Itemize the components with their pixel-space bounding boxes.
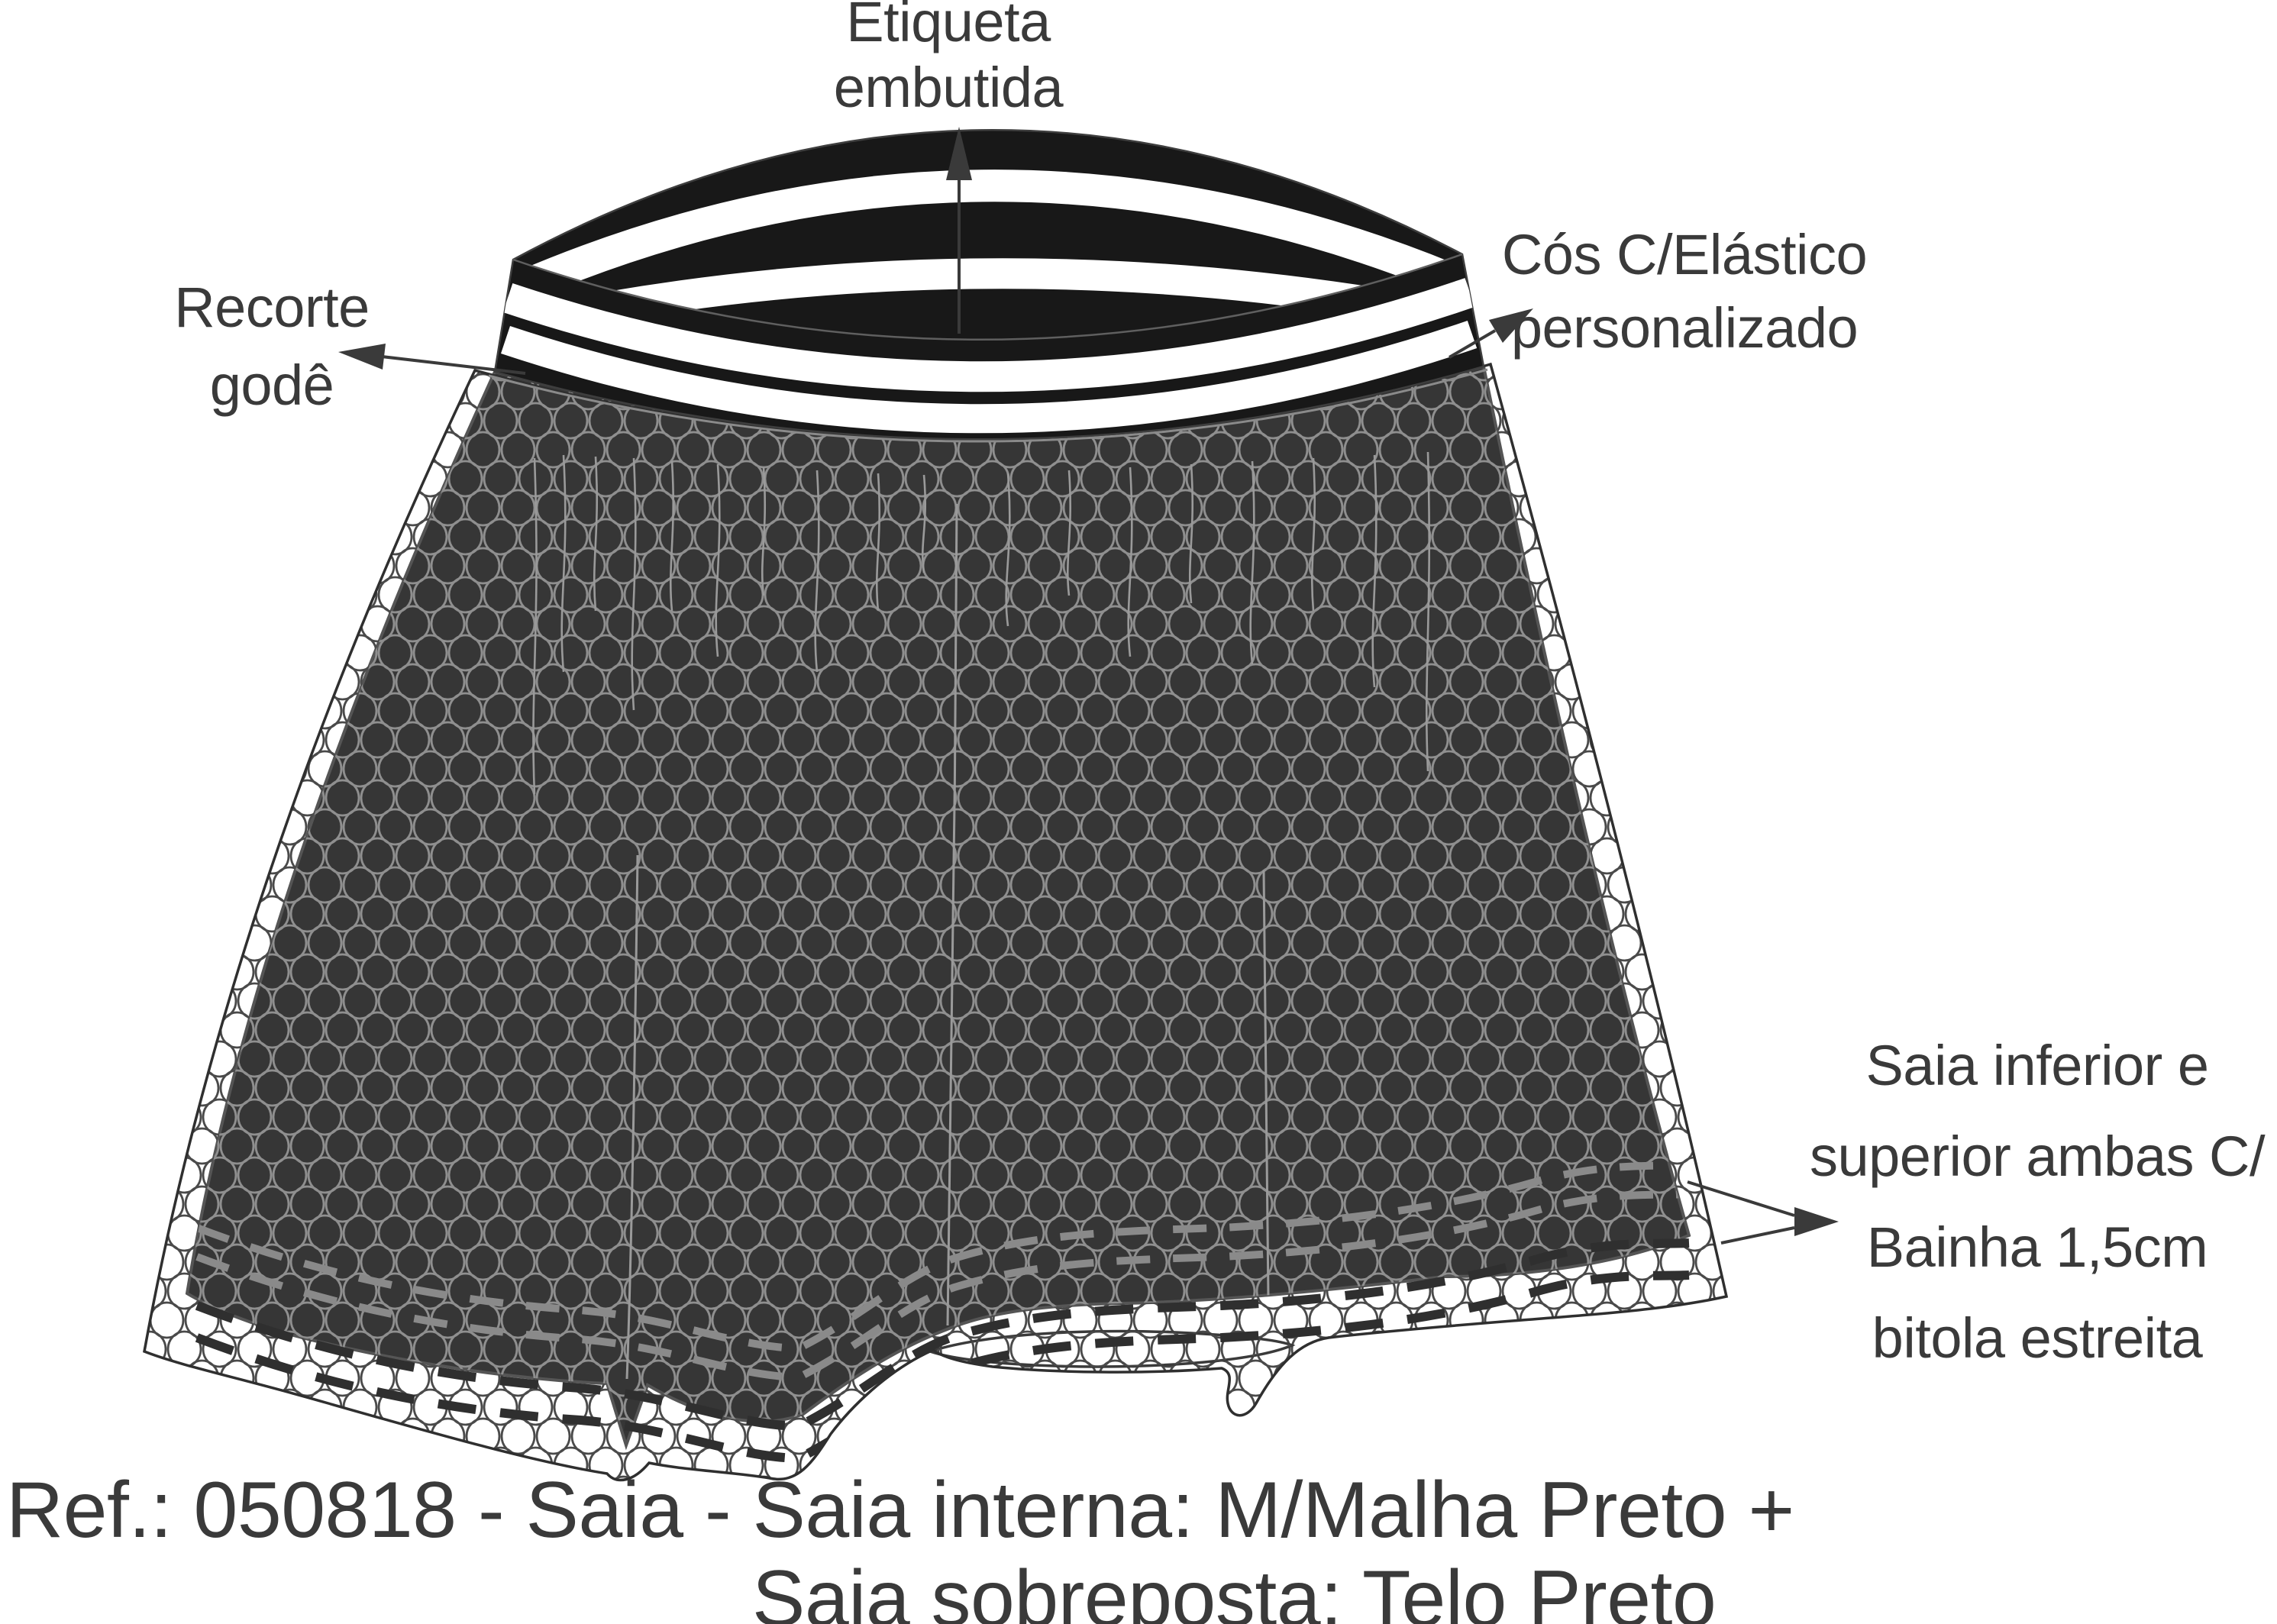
label-cos-elastico: Cós C/Elástico personalizado (1455, 218, 1914, 365)
caption-reference-line1: Ref.: 050818 - Saia - Saia interna: M/Ma… (6, 1467, 1794, 1553)
waistband-group (495, 130, 1484, 439)
caption-reference-line2: Saia sobreposta: Telo Preto (752, 1556, 1716, 1624)
label-bainha: Saia inferior e superior ambas C/ Bainha… (1770, 1020, 2277, 1383)
label-etiqueta-embutida: Etiqueta embutida (681, 0, 1216, 121)
label-recorte-gode: Recorte godê (43, 269, 501, 425)
technical-flat-sketch: Etiqueta embutida Recorte godê Cós C/Elá… (0, 0, 2277, 1624)
